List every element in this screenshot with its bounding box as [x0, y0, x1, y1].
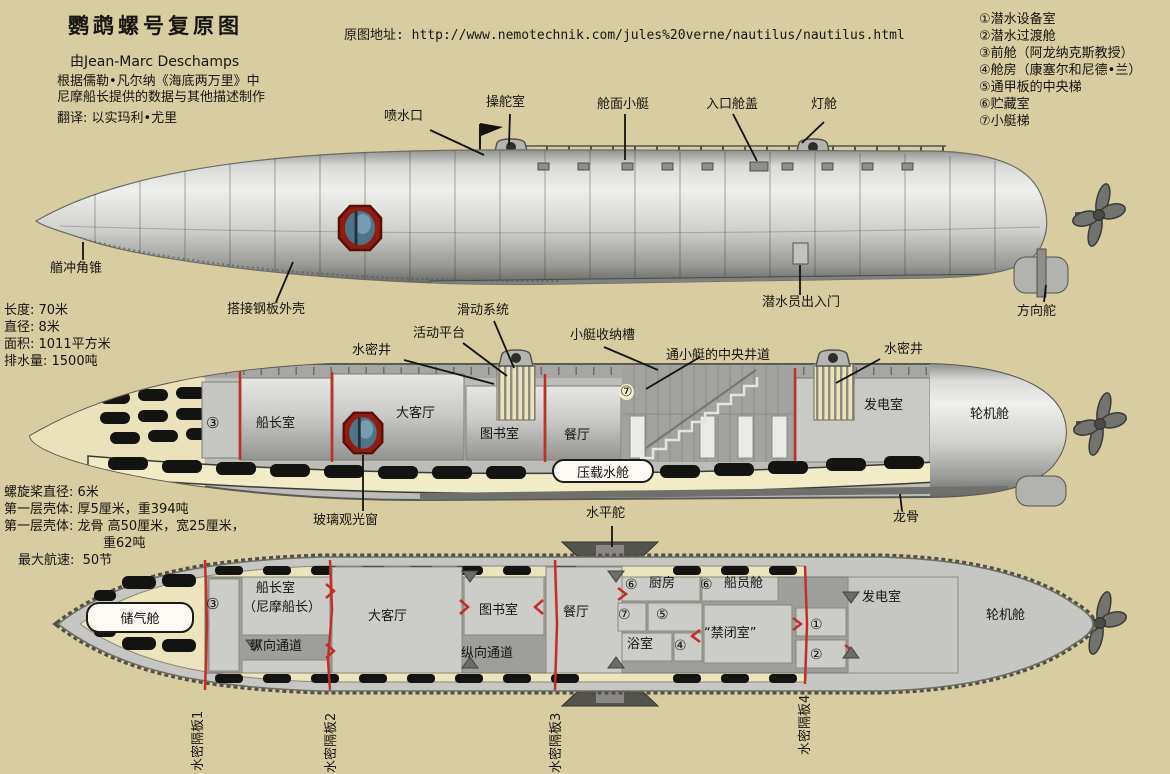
label-boat-slot: 小艇收纳槽 — [570, 329, 635, 344]
label-hull-plating: 搭接钢板外壳 — [227, 303, 305, 318]
legend-item: ③前舱（阿龙纳克斯教授） — [979, 45, 1141, 62]
specs-dimensions: 长度: 70米 直径: 8米 面积: 1011平方米 排水量: 1500吨 — [4, 302, 111, 370]
label-bulkhead-2: 水密隔板2 — [325, 713, 340, 773]
legend-item: ④舱房（康塞尔和尼德•兰） — [979, 62, 1141, 79]
spec-line: 第一层壳体: 龙骨 高50厘米，宽25厘米， — [4, 518, 245, 535]
spec-line: 重62吨 — [4, 535, 245, 552]
label-generator-room: 发电室 — [864, 399, 903, 414]
label-bulkhead-1: 水密隔板1 — [192, 711, 207, 771]
label-plan-generator: 发电室 — [862, 591, 901, 606]
label-helm-room: 操舵室 — [486, 96, 525, 111]
description-line-2: 尼摩船长提供的数据与其他描述制作 — [57, 91, 265, 106]
label-deck-boat: 舱面小艇 — [597, 98, 649, 113]
label-boat-ladder-7: ⑦ — [619, 384, 634, 400]
label-plan-7: ⑦ — [618, 607, 631, 623]
label-entry-hatch: 入口舱盖 — [706, 98, 758, 113]
label-bathroom: 浴室 — [627, 638, 653, 653]
spec-line: 第一层壳体: 厚5厘米，重394吨 — [4, 501, 245, 518]
label-bulkhead-3: 水密隔板3 — [550, 713, 565, 773]
label-central-shaft: 通小艇的中央井道 — [666, 349, 770, 364]
label-ballast-tank: 压载水舱 — [577, 462, 629, 481]
label-keel: 龙骨 — [893, 511, 919, 526]
page-title: 鹦鹉螺号复原图 — [68, 14, 243, 38]
label-plan-compartment-3: ③ — [206, 596, 219, 613]
label-brig: “禁闭室” — [704, 627, 756, 642]
legend-item: ②潜水过渡舱 — [979, 28, 1141, 45]
label-movable-platform: 活动平台 — [413, 327, 465, 342]
label-storeroom-6a: ⑥ — [625, 577, 638, 593]
label-watertight-well-right: 水密井 — [884, 343, 923, 358]
label-plan-library: 图书室 — [479, 604, 518, 619]
spec-line: 面积: 1011平方米 — [4, 336, 111, 353]
label-dining-room: 餐厅 — [564, 429, 590, 444]
label-plan-engine: 轮机舱 — [986, 609, 1025, 624]
label-plan-grand-salon: 大客厅 — [368, 610, 407, 625]
spec-line: 最大航速: 50节 — [4, 552, 245, 569]
legend-item: ⑥贮藏室 — [979, 96, 1141, 113]
label-hydroplane: 水平舵 — [586, 507, 625, 522]
label-storeroom-6b: ⑥ — [700, 577, 713, 593]
spec-line: 长度: 70米 — [4, 302, 111, 319]
label-kitchen: 厨房 — [649, 577, 675, 592]
air-tank-pill: 储气舱 — [86, 602, 194, 633]
label-ram-cone: 艏冲角锥 — [50, 262, 102, 277]
legend-item: ⑦小艇梯 — [979, 113, 1141, 130]
label-plan-1: ① — [810, 617, 823, 633]
label-grand-salon: 大客厅 — [396, 407, 435, 422]
spec-line: 排水量: 1500吨 — [4, 353, 111, 370]
label-passage-mid: 纵向通道 — [461, 647, 513, 662]
label-engine-room: 轮机舱 — [970, 408, 1009, 423]
nautilus-diagram: 鹦鹉螺号复原图 由Jean-Marc Deschamps 根据儒勒•凡尔纳《海底… — [0, 0, 1170, 774]
label-plan-captain-room-2: （尼摩船长） — [243, 601, 321, 616]
label-plan-captain-room: 船长室 — [256, 582, 295, 597]
label-rudder: 方向舵 — [1017, 305, 1056, 320]
side-view-art — [36, 123, 1127, 297]
legend-item: ⑤通甲板的中央梯 — [979, 79, 1141, 96]
spec-line: 直径: 8米 — [4, 319, 111, 336]
specs-hull: 螺旋桨直径: 6米 第一层壳体: 厚5厘米，重394吨 第一层壳体: 龙骨 高5… — [4, 484, 245, 569]
label-spray-nozzle: 喷水口 — [384, 110, 423, 125]
label-crew-cabin: 船员舱 — [724, 577, 763, 592]
translator-line: 翻译: 以实玛利•尤里 — [57, 112, 177, 127]
label-compartment-3: ③ — [206, 415, 219, 432]
label-plan-2: ② — [810, 647, 823, 663]
label-plan-dining: 餐厅 — [563, 606, 589, 621]
description-line-1: 根据儒勒•凡尔纳《海底两万里》中 — [57, 75, 260, 90]
legend-item: ①潜水设备室 — [979, 11, 1141, 28]
label-sliding-system: 滑动系统 — [457, 304, 509, 319]
label-glass-window: 玻璃观光窗 — [313, 514, 378, 529]
source-url-line: 原图地址: http://www.nemotechnik.com/jules%2… — [344, 29, 905, 44]
label-captain-room: 船长室 — [256, 417, 295, 432]
label-air-tank: 储气舱 — [120, 608, 159, 627]
legend: ①潜水设备室 ②潜水过渡舱 ③前舱（阿龙纳克斯教授） ④舱房（康塞尔和尼德•兰）… — [979, 11, 1141, 130]
label-light-cabin: 灯舱 — [811, 98, 837, 113]
ballast-tank-pill: 压载水舱 — [552, 459, 654, 483]
label-diver-door: 潜水员出入门 — [762, 296, 840, 311]
label-bulkhead-4: 水密隔板4 — [799, 695, 814, 755]
label-library: 图书室 — [480, 428, 519, 443]
author-line: 由Jean-Marc Deschamps — [70, 54, 239, 70]
label-passage-forward: 纵向通道 — [250, 640, 302, 655]
spec-line: 螺旋桨直径: 6米 — [4, 484, 245, 501]
label-watertight-well-left: 水密井 — [352, 344, 391, 359]
label-plan-5: ⑤ — [656, 607, 669, 623]
label-plan-4: ④ — [674, 638, 687, 654]
